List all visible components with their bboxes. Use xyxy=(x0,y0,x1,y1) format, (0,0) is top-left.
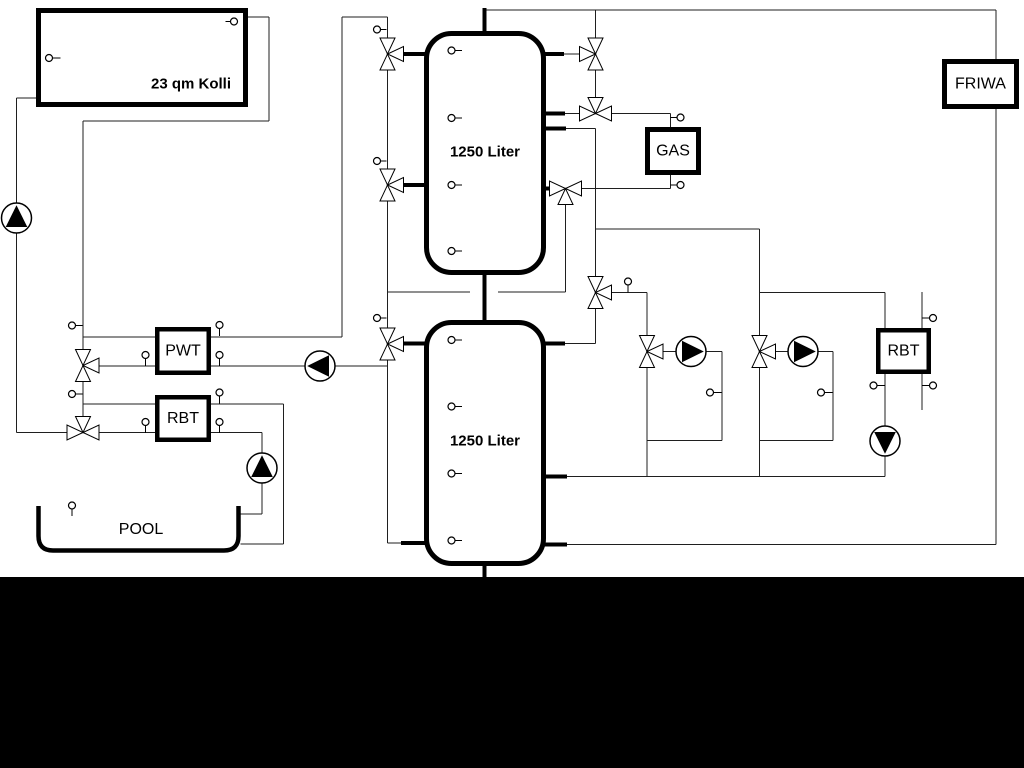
svg-text:POOL: POOL xyxy=(119,521,164,538)
svg-text:RBT: RBT xyxy=(167,410,199,427)
svg-text:RBT: RBT xyxy=(888,343,920,360)
svg-text:GAS: GAS xyxy=(656,143,690,160)
svg-text:23 qm Kolli: 23 qm Kolli xyxy=(151,76,231,93)
svg-text:1250 Liter: 1250 Liter xyxy=(450,433,520,450)
svg-text:1250 Liter: 1250 Liter xyxy=(450,144,520,161)
svg-text:FRIWA: FRIWA xyxy=(955,76,1006,93)
svg-text:PWT: PWT xyxy=(165,343,201,360)
